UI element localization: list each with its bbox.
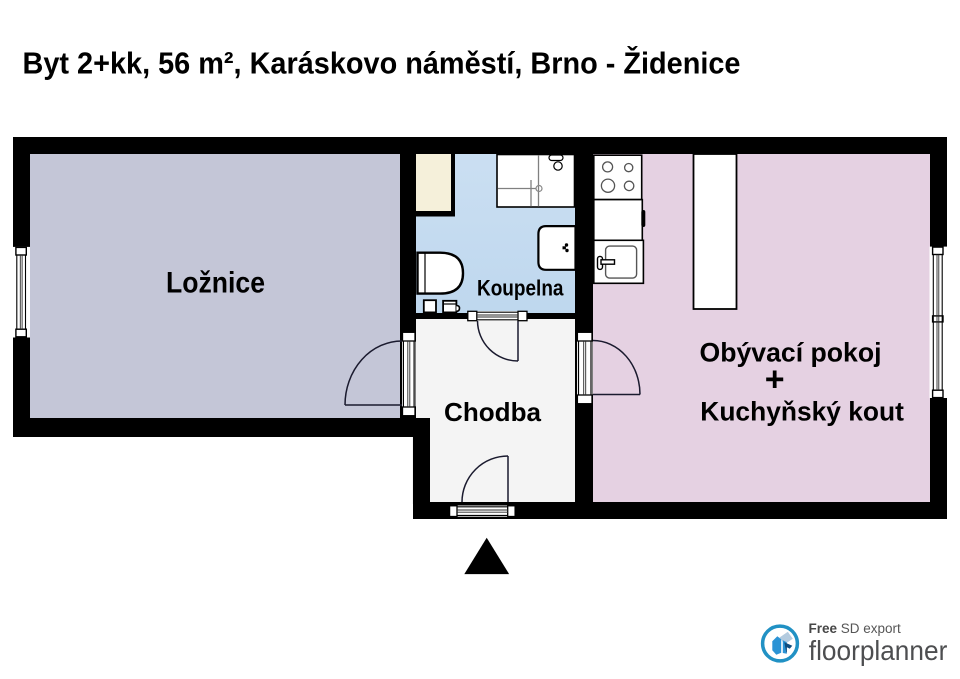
svg-text:Byt 2+kk, 56 m², Karáskovo nám: Byt 2+kk, 56 m², Karáskovo náměstí, Brno… [23,44,741,80]
svg-text:Koupelna: Koupelna [477,276,564,301]
svg-text:Ložnice: Ložnice [166,266,265,299]
svg-text:Obývací pokoj: Obývací pokoj [700,338,882,368]
svg-text:+: + [765,361,785,399]
svg-text:floorplanner: floorplanner [809,635,948,666]
svg-text:Kuchyňský kout: Kuchyňský kout [700,397,904,427]
svg-text:Chodba: Chodba [444,399,542,427]
